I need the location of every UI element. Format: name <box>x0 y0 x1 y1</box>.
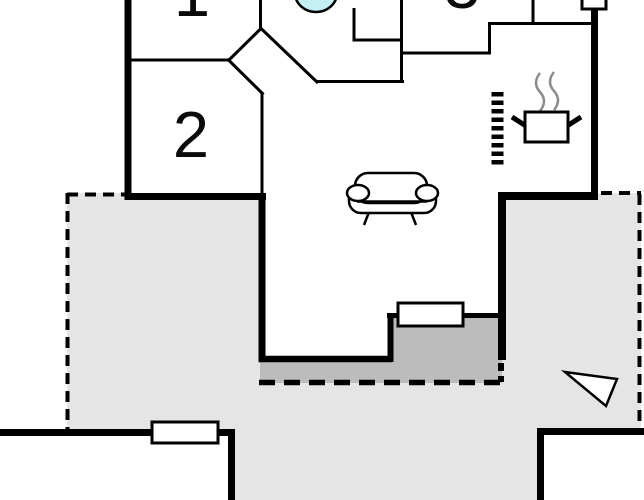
outbuilding-left-floor <box>0 436 228 500</box>
sofa-armrest-right <box>416 185 438 201</box>
outbuilding-right-floor <box>544 435 644 500</box>
steam-icon <box>550 72 558 110</box>
sofa-armrest-left <box>347 185 369 201</box>
room-2-label: 2 <box>173 98 209 171</box>
chimney-icon <box>582 0 606 9</box>
sink-icon <box>295 0 337 12</box>
steam-icon <box>536 73 544 111</box>
entrance-door <box>398 303 463 326</box>
floor-plan: 1 2 3 <box>0 0 644 500</box>
window <box>152 422 218 443</box>
terrace-area-lower <box>235 428 537 500</box>
stove-pot-icon <box>512 72 581 142</box>
room-3-label: 3 <box>444 0 480 22</box>
pot-body <box>525 112 568 142</box>
room-1-label: 1 <box>174 0 210 30</box>
entrance-step-strip <box>260 360 391 383</box>
